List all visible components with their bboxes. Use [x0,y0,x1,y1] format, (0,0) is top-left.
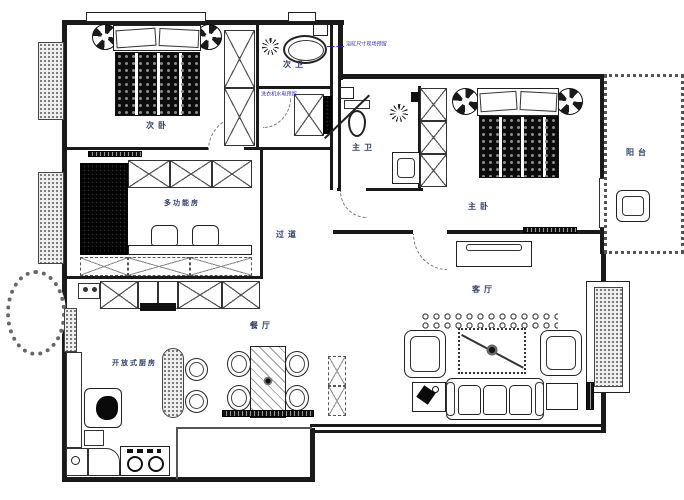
kitchen-cabinet-cell [222,281,260,309]
window-above-bath [288,12,316,22]
wall-bottom-kitchen [62,477,314,482]
shower-light-icon [390,104,408,122]
low-cabinet-cell [128,257,190,276]
cabinet-cell [128,160,170,188]
room-label-secondary-bathroom: 次卫 [283,61,307,69]
room-label-master-bedroom: 主卧 [468,203,492,211]
wall-living-top-left [333,230,413,234]
bar-counter [162,348,184,418]
bed-quilt [479,116,559,178]
low-cabinet-cell [80,257,128,276]
cabinet-cell [170,160,212,188]
room-label-balcony: 阳台 [626,149,650,157]
stove-controls [127,449,161,453]
desk-chair [192,225,219,246]
wall-light-icon [262,38,279,55]
door-arc-master-bedroom [413,234,447,270]
room-label-dining: 餐厅 [250,322,274,330]
round-bay-feature [6,270,66,356]
vent-fixture [340,87,354,99]
window-kitchen-left [64,308,77,352]
wall-top-right [338,74,606,79]
wardrobe-cell [224,30,255,88]
cabinet-cell [212,160,252,188]
bar-stool [185,358,208,381]
radiator [523,227,577,233]
vent-fixture [313,24,328,36]
annotation-laundry: 洗衣机水电预留 [261,92,297,97]
shower-hinge [411,92,419,102]
sofa-arm [535,382,544,416]
armchair-seat [546,336,576,370]
wall-bottom-right-outer [310,424,606,427]
nightstand-lamp-icon [452,88,479,115]
wardrobe-cell [420,154,447,187]
rug-flower [485,343,499,357]
room-label-living: 客厅 [472,286,496,294]
dining-chair [285,351,309,377]
burner [127,456,143,472]
pillow [479,91,517,113]
room-label-corridor: 过道 [276,231,300,239]
corner-counter [88,448,120,476]
dining-chair [227,385,251,411]
annotation-leader [327,46,344,47]
drain-circle [71,456,80,465]
wall-bottom-step [310,428,315,482]
knob [92,287,97,292]
tatami-mat [80,163,128,255]
sofa-cushion [509,385,532,415]
side-table [546,383,578,410]
wardrobe-cell [224,88,255,146]
knob [83,287,88,292]
kitchen-counter-left [66,352,82,448]
window-left-multiroom [38,172,64,264]
wall-multiroom-bottom [64,276,263,279]
kitchen-cabinet-cell [100,281,138,309]
dining-floor-mat [222,410,314,417]
wardrobe-cell [420,121,447,154]
bathtub-inner [288,40,324,61]
sofa-cushion [458,385,481,415]
sofa [446,378,544,420]
door-arc-laundry [263,98,291,128]
bar-stool [185,390,208,413]
desk [128,245,252,255]
nightstand-lamp-icon [556,88,583,115]
table-lamp-bulb [432,386,439,393]
wall-bottom-right-inner [310,430,606,433]
pillow [159,28,200,48]
kitchen-cabinet-cell [178,281,222,309]
kitchen-small-box [84,430,104,446]
room-label-master-bathroom: 主卫 [352,144,376,152]
wall-corridor-left [260,150,263,278]
room-label-multifunction: 多功能房 [164,200,200,207]
sofa-arm [446,382,455,416]
pillow [115,28,156,49]
built-in-oven [140,303,176,311]
dining-chair [227,351,251,377]
annotation-bathtub: 浴缸尺寸现场预留 [346,42,387,47]
sofa-cushion [483,385,506,415]
window-above-bed [86,12,206,22]
kitchen-counter-edge-v [176,427,178,479]
radiator-vertical [586,382,594,410]
balcony-chair-seat [622,196,644,216]
table-centerpiece [263,376,273,386]
balcony-railing [604,74,684,254]
room-label-secondary-bedroom: 次卧 [146,122,170,130]
pillow [520,91,558,112]
window-left-bedroom [38,42,64,120]
burner [148,456,164,472]
room-label-kitchen: 开放式厨房 [112,360,157,367]
wall-top-step [338,20,343,80]
wardrobe-cell [420,88,447,121]
hall-cabinet-cell [328,356,346,386]
hall-cabinet-cell [328,386,346,416]
radiator [88,151,142,157]
kitchen-wall-box [78,283,100,299]
kitchen-counter-edge [176,427,312,429]
armchair-seat [410,336,440,372]
low-cabinet-cell [190,257,252,276]
door-arc-masterbath [340,191,367,218]
washing-machine [294,94,324,136]
dining-chair [285,385,309,411]
floor-plan: 次卧 次卫 浴缸尺寸现场预留 洗衣机水电预留 主卫 主卧 阳台 多功能房 过道 [0,0,684,500]
wall-bedroom-bath [256,20,259,150]
wall-bath-laundry [258,86,332,89]
wall-laundry-bottom [258,147,333,150]
vanity-basin [397,158,415,178]
tv [466,244,522,251]
faucet-icon [96,396,118,420]
desk-chair [151,225,178,246]
laundry-shelf [323,96,332,134]
bed-quilt [115,52,200,116]
living-window-bay-glass [594,287,623,387]
